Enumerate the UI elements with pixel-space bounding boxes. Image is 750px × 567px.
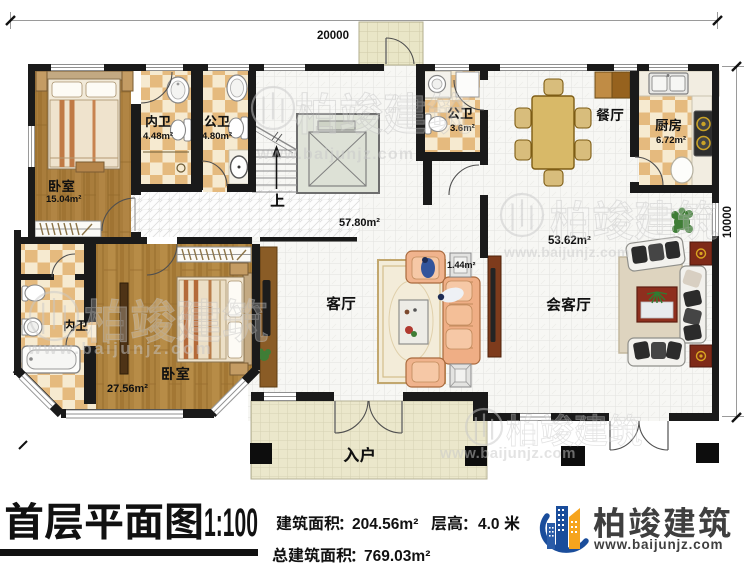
svg-text:4.48m²: 4.48m² <box>143 131 173 142</box>
svg-text:1.44m²: 1.44m² <box>447 260 476 270</box>
svg-text:204.56m²: 204.56m² <box>352 516 418 533</box>
svg-text:27.56m²: 27.56m² <box>107 383 148 395</box>
svg-text:www.baijunjz.com: www.baijunjz.com <box>503 244 630 260</box>
svg-text:15.04m²: 15.04m² <box>46 194 81 205</box>
svg-text:20000: 20000 <box>317 30 349 42</box>
svg-text:10000: 10000 <box>722 206 734 238</box>
svg-text:4.80m²: 4.80m² <box>202 131 232 142</box>
svg-text:www.baijunjz.com: www.baijunjz.com <box>27 339 213 358</box>
svg-text:6.72m²: 6.72m² <box>656 135 686 146</box>
svg-text:1:100: 1:100 <box>204 501 258 545</box>
svg-text:57.80m²: 57.80m² <box>339 217 380 229</box>
svg-text:www.baijunjz.com: www.baijunjz.com <box>439 445 576 462</box>
svg-text:www.baijunjz.com: www.baijunjz.com <box>593 537 723 552</box>
svg-text:：: ： <box>462 516 478 533</box>
svg-text:769.03m²: 769.03m² <box>364 548 430 565</box>
svg-text:4.0: 4.0 <box>478 516 500 533</box>
svg-text:www.baijunjz.com: www.baijunjz.com <box>256 146 414 163</box>
